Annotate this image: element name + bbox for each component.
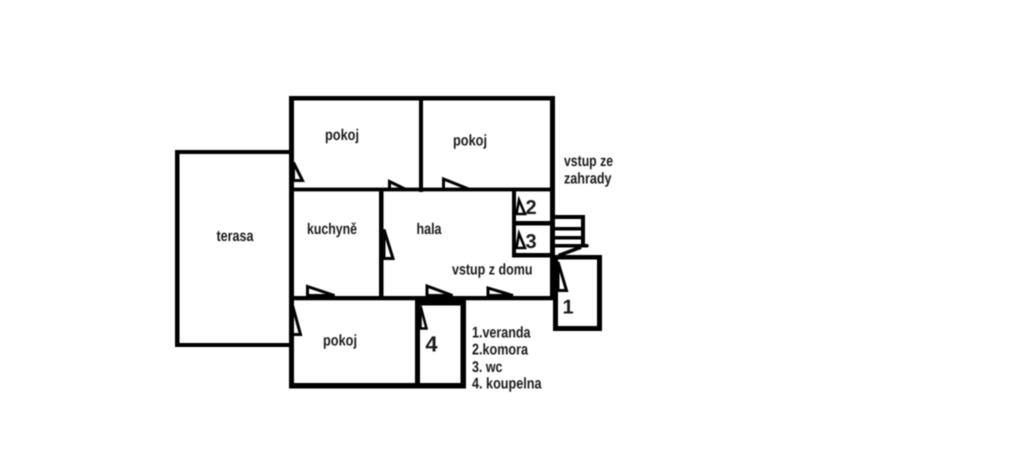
svg-text:pokoj: pokoj <box>325 127 359 144</box>
svg-text:hala: hala <box>417 221 442 238</box>
svg-text:terasa: terasa <box>217 228 254 245</box>
svg-text:3. wc: 3. wc <box>472 359 503 376</box>
svg-text:vstup z domu: vstup z domu <box>452 262 533 279</box>
svg-text:4. koupelna: 4. koupelna <box>472 376 542 393</box>
svg-text:pokoj: pokoj <box>453 133 487 150</box>
svg-text:3: 3 <box>525 231 536 253</box>
svg-text:kuchyně: kuchyně <box>307 221 357 238</box>
svg-text:2.komora: 2.komora <box>472 342 528 359</box>
svg-text:zahrady: zahrady <box>564 171 612 188</box>
svg-text:1: 1 <box>562 297 573 319</box>
svg-text:vstup ze: vstup ze <box>564 153 613 170</box>
svg-text:2: 2 <box>525 197 536 219</box>
svg-text:1.veranda: 1.veranda <box>472 325 531 342</box>
svg-text:pokoj: pokoj <box>323 333 357 350</box>
svg-text:4: 4 <box>425 332 438 357</box>
